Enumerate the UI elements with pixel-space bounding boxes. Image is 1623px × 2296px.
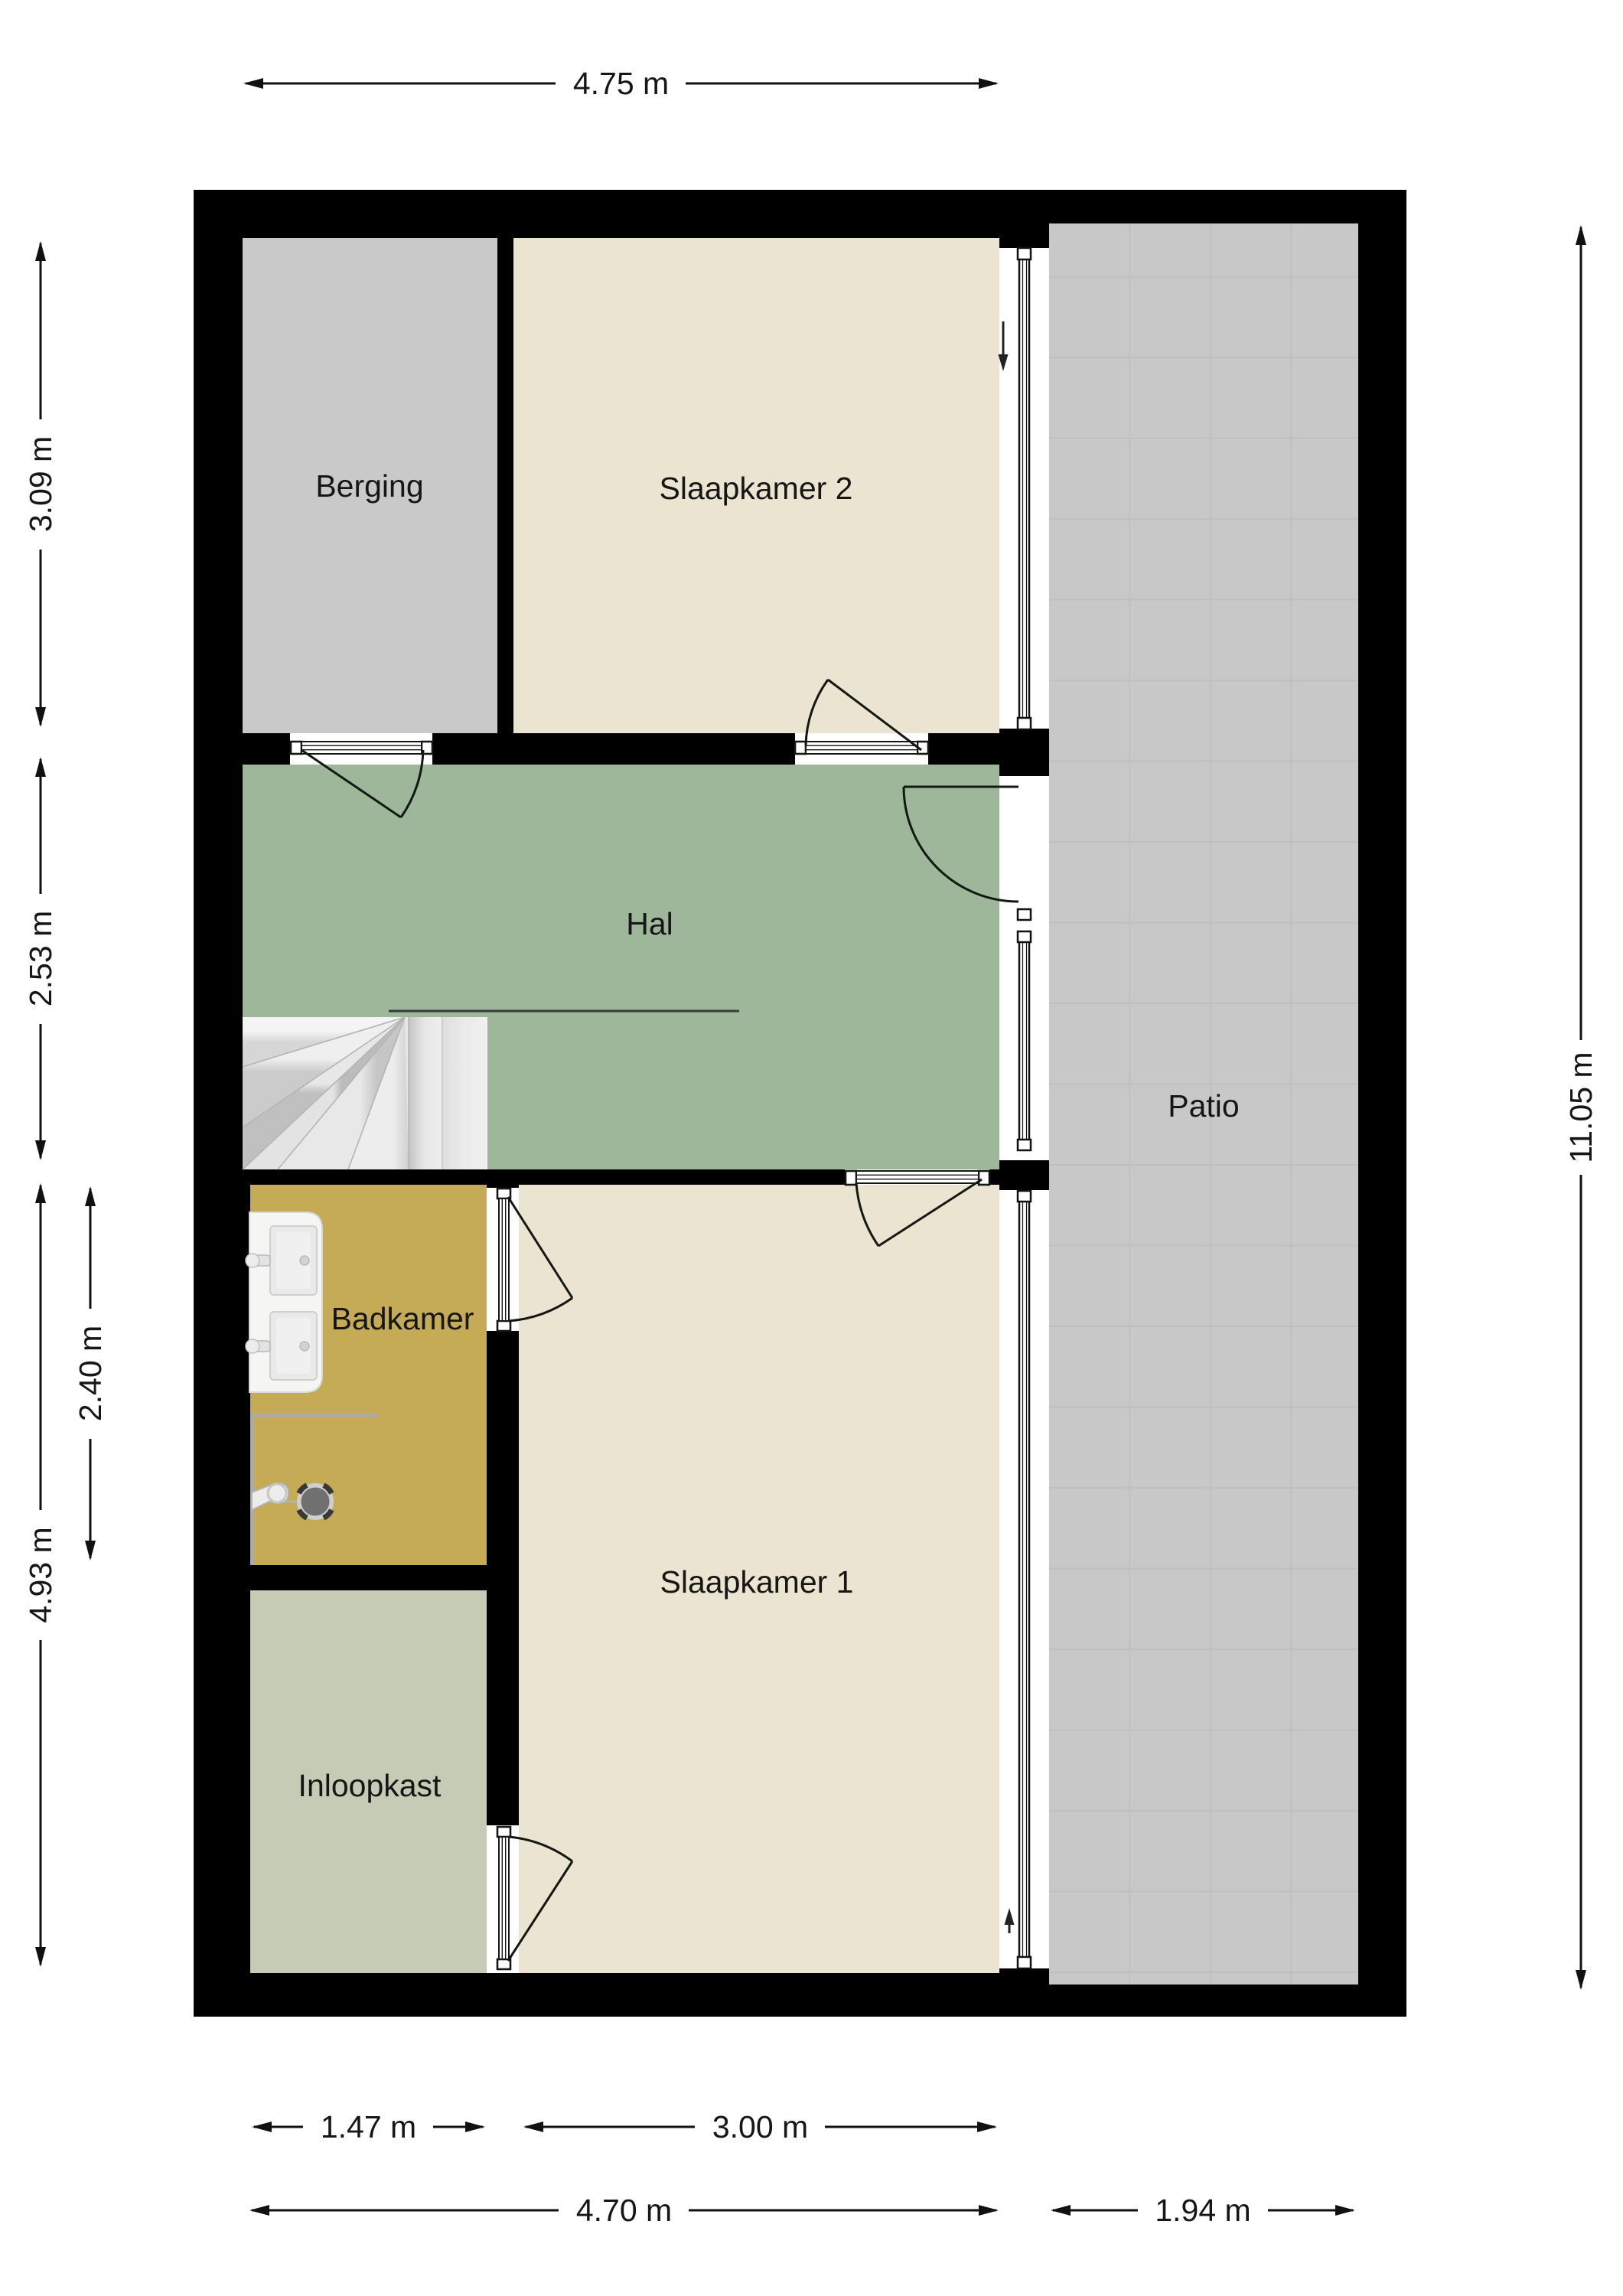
- svg-text:Slaapkamer 1: Slaapkamer 1: [660, 1564, 854, 1600]
- svg-text:4.70 m: 4.70 m: [576, 2193, 672, 2228]
- svg-text:2.53 m: 2.53 m: [23, 911, 58, 1006]
- svg-text:Hal: Hal: [626, 906, 673, 941]
- svg-text:3.09 m: 3.09 m: [23, 436, 58, 532]
- svg-text:4.93 m: 4.93 m: [23, 1527, 58, 1623]
- svg-text:1.47 m: 1.47 m: [321, 2109, 416, 2144]
- svg-text:Patio: Patio: [1168, 1088, 1239, 1124]
- svg-text:4.75 m: 4.75 m: [573, 66, 669, 101]
- svg-text:2.40 m: 2.40 m: [73, 1326, 108, 1421]
- svg-text:Berging: Berging: [315, 468, 423, 504]
- svg-text:3.00 m: 3.00 m: [712, 2109, 808, 2144]
- svg-text:Badkamer: Badkamer: [331, 1301, 474, 1336]
- svg-text:Inloopkast: Inloopkast: [298, 1768, 442, 1803]
- svg-text:Slaapkamer 2: Slaapkamer 2: [660, 471, 853, 506]
- svg-text:1.94 m: 1.94 m: [1155, 2193, 1250, 2228]
- svg-text:11.05 m: 11.05 m: [1563, 1052, 1599, 1163]
